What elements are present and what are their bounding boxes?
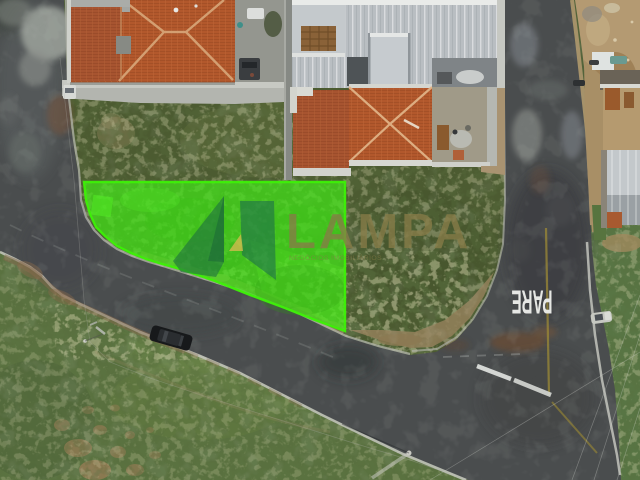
- svg-text:NEGÓCIOS IMOBILIÁRIOS: NEGÓCIOS IMOBILIÁRIOS: [289, 253, 382, 262]
- svg-text:PARE: PARE: [511, 283, 552, 319]
- svg-text:LAMPA: LAMPA: [286, 205, 472, 259]
